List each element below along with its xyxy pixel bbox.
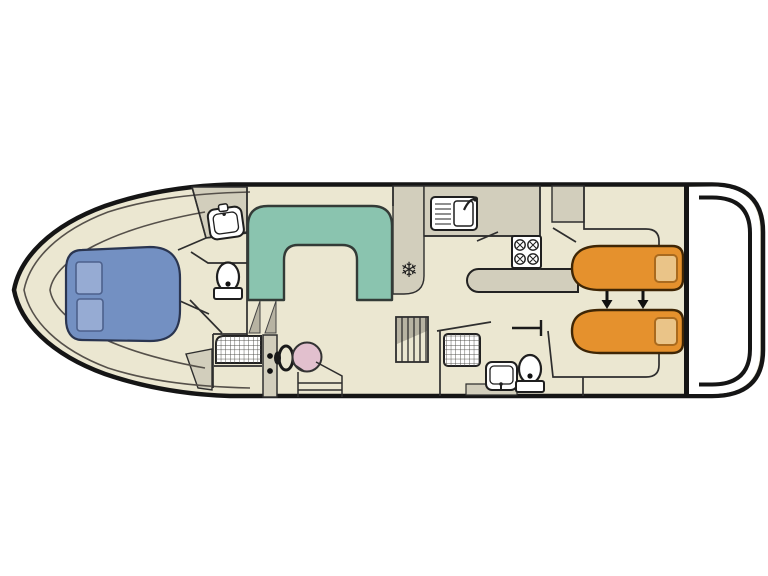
galley-sink: [431, 196, 478, 230]
console-knob-1: [267, 353, 273, 359]
washbasin-rear: [486, 362, 517, 391]
steering-wheel-hub: [274, 352, 281, 365]
floorplan-canvas: ❄: [0, 0, 768, 576]
toilet-rear: [516, 355, 544, 392]
toilet-forward: [214, 263, 242, 300]
pillow-forward-2: [77, 299, 103, 331]
galley-counter-bar: [467, 269, 578, 292]
pillow-forward-1: [76, 262, 102, 294]
pillow-rear-bottom: [655, 318, 677, 345]
console-knob-2: [267, 368, 273, 374]
helm-seat: [293, 343, 322, 372]
shower-forward: [216, 336, 261, 363]
shower-rear: [444, 334, 480, 366]
refrigerator-snowflake-icon: ❄: [400, 259, 418, 282]
stove-4-burner: [512, 236, 541, 268]
corridor-wardrobe-rear: [552, 186, 584, 222]
pillow-rear-top: [655, 255, 677, 282]
helm-console: [263, 335, 277, 397]
boat-floorplan: ❄: [0, 0, 768, 576]
